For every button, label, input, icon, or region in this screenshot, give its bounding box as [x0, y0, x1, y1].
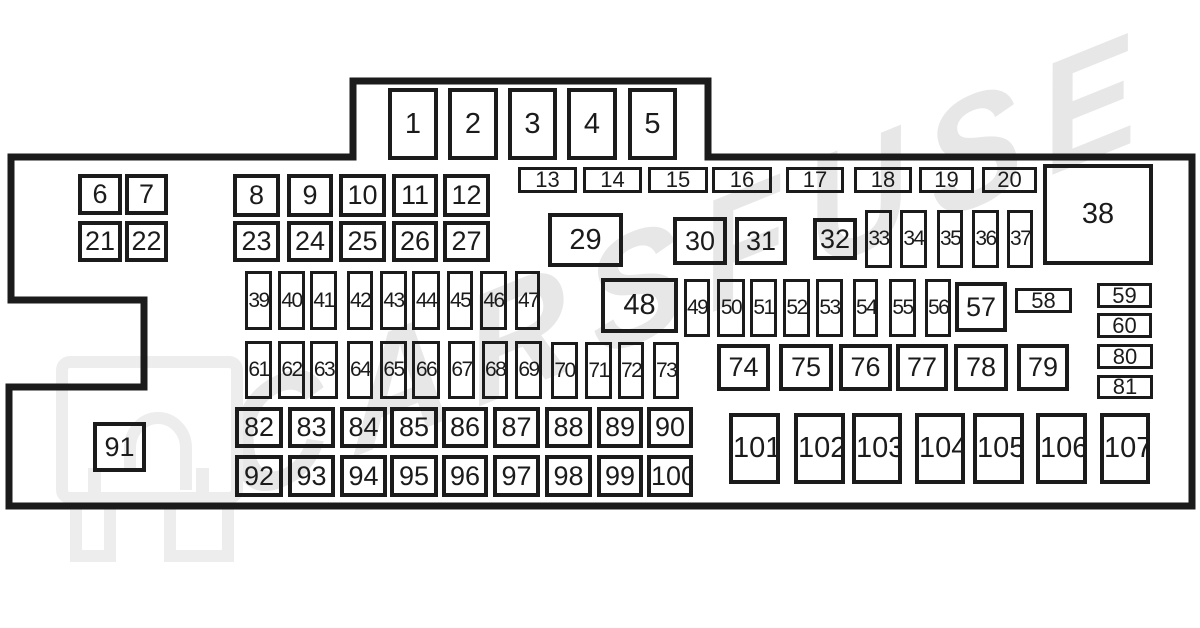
- fuse-cell-54: 54: [853, 279, 878, 337]
- fuse-cell-18: 18: [854, 167, 912, 193]
- fuse-cell-93: 93: [288, 455, 335, 497]
- fuse-cell-27: 27: [443, 221, 490, 262]
- fuse-cell-105: 105: [973, 413, 1024, 484]
- fuse-cell-70: 70: [551, 342, 578, 399]
- fuse-cell-4: 4: [567, 88, 617, 160]
- fuse-cell-55: 55: [889, 279, 916, 337]
- fuse-cell-67: 67: [448, 341, 475, 399]
- fuse-cell-65: 65: [380, 341, 407, 399]
- fuse-cell-49: 49: [684, 279, 710, 337]
- fuse-cell-26: 26: [392, 221, 438, 262]
- fuse-cell-16: 16: [712, 167, 772, 193]
- fuse-cell-2: 2: [448, 88, 498, 160]
- fuse-cell-89: 89: [597, 407, 643, 448]
- fuse-layer: 1234567891011121314151617181920212223242…: [0, 0, 1200, 628]
- fuse-cell-75: 75: [779, 344, 833, 391]
- fuse-cell-10: 10: [339, 174, 386, 217]
- fuse-cell-19: 19: [919, 167, 974, 193]
- fuse-cell-83: 83: [288, 407, 335, 448]
- fuse-cell-38: 38: [1043, 164, 1153, 265]
- fuse-cell-37: 37: [1007, 210, 1033, 268]
- fuse-cell-58: 58: [1015, 288, 1072, 313]
- fuse-cell-6: 6: [78, 174, 122, 215]
- fuse-cell-47: 47: [515, 271, 540, 330]
- fuse-cell-102: 102: [794, 413, 845, 484]
- fuse-cell-20: 20: [982, 167, 1037, 193]
- fuse-cell-66: 66: [412, 341, 440, 399]
- fuse-cell-8: 8: [233, 174, 280, 217]
- fuse-cell-57: 57: [955, 282, 1007, 332]
- fuse-cell-85: 85: [390, 407, 438, 448]
- fuse-cell-9: 9: [287, 174, 333, 217]
- fuse-cell-87: 87: [493, 407, 540, 448]
- fuse-cell-23: 23: [233, 221, 280, 262]
- fuse-cell-77: 77: [896, 344, 948, 391]
- fuse-cell-22: 22: [125, 221, 168, 262]
- fuse-cell-41: 41: [310, 271, 337, 330]
- fuse-cell-31: 31: [735, 217, 787, 265]
- fuse-cell-69: 69: [515, 341, 542, 399]
- fuse-cell-86: 86: [442, 407, 488, 448]
- fuse-cell-13: 13: [518, 167, 577, 193]
- fuse-cell-11: 11: [392, 174, 438, 217]
- fuse-cell-56: 56: [925, 279, 951, 337]
- fuse-cell-72: 72: [618, 342, 644, 399]
- fuse-cell-59: 59: [1097, 283, 1152, 308]
- fuse-cell-24: 24: [287, 221, 333, 262]
- fuse-cell-95: 95: [390, 455, 438, 497]
- fuse-cell-76: 76: [839, 344, 892, 391]
- fuse-cell-35: 35: [937, 210, 963, 268]
- fuse-cell-97: 97: [493, 455, 540, 497]
- fuse-cell-103: 103: [852, 413, 902, 484]
- fuse-cell-30: 30: [673, 217, 727, 265]
- fuse-cell-39: 39: [245, 271, 272, 330]
- fuse-cell-42: 42: [347, 271, 373, 330]
- fuse-cell-82: 82: [235, 407, 283, 448]
- fuse-cell-62: 62: [278, 341, 305, 399]
- fuse-cell-50: 50: [717, 279, 745, 337]
- fuse-cell-46: 46: [480, 271, 507, 330]
- fuse-cell-52: 52: [783, 279, 810, 337]
- fuse-cell-88: 88: [545, 407, 592, 448]
- fuse-cell-101: 101: [729, 413, 780, 484]
- fuse-cell-94: 94: [340, 455, 387, 497]
- fuse-cell-100: 100: [647, 455, 693, 497]
- fuse-cell-12: 12: [443, 174, 490, 217]
- fuse-cell-98: 98: [545, 455, 592, 497]
- fuse-cell-15: 15: [648, 167, 708, 193]
- fuse-cell-44: 44: [412, 271, 440, 330]
- fuse-cell-79: 79: [1017, 344, 1069, 391]
- fuse-cell-53: 53: [816, 279, 843, 337]
- fuse-cell-36: 36: [972, 210, 999, 268]
- fuse-cell-71: 71: [585, 342, 612, 399]
- fuse-cell-17: 17: [786, 167, 844, 193]
- fuse-cell-29: 29: [548, 213, 623, 267]
- fuse-cell-48: 48: [601, 278, 678, 333]
- fuse-cell-81: 81: [1097, 375, 1153, 399]
- fuse-cell-32: 32: [813, 218, 857, 260]
- fuse-cell-63: 63: [310, 341, 338, 399]
- fuse-cell-7: 7: [125, 174, 168, 215]
- fuse-cell-3: 3: [508, 88, 557, 160]
- fuse-cell-104: 104: [915, 413, 965, 484]
- fuse-cell-45: 45: [447, 271, 473, 330]
- fuse-cell-84: 84: [340, 407, 387, 448]
- fuse-cell-5: 5: [628, 88, 677, 160]
- fuse-cell-51: 51: [750, 279, 777, 337]
- fuse-cell-68: 68: [482, 341, 508, 399]
- fuse-cell-99: 99: [597, 455, 643, 497]
- fuse-cell-61: 61: [245, 341, 272, 399]
- fuse-cell-14: 14: [583, 167, 642, 193]
- fuse-cell-90: 90: [647, 407, 693, 448]
- fuse-cell-74: 74: [717, 344, 770, 391]
- fuse-cell-80: 80: [1097, 344, 1153, 369]
- fuse-cell-96: 96: [442, 455, 488, 497]
- fuse-cell-43: 43: [380, 271, 407, 330]
- fuse-cell-21: 21: [78, 221, 122, 262]
- fuse-cell-78: 78: [954, 344, 1008, 391]
- fuse-cell-1: 1: [388, 88, 438, 160]
- fuse-cell-92: 92: [235, 455, 283, 497]
- fuse-box-diagram: CARSFUSE 1234567891011121314151617181920…: [0, 0, 1200, 628]
- fuse-cell-60: 60: [1097, 313, 1152, 338]
- fuse-cell-34: 34: [900, 210, 927, 268]
- fuse-cell-33: 33: [865, 210, 892, 268]
- fuse-cell-106: 106: [1036, 413, 1087, 484]
- fuse-cell-73: 73: [653, 342, 679, 399]
- fuse-cell-40: 40: [278, 271, 305, 330]
- fuse-cell-91: 91: [93, 422, 146, 472]
- fuse-cell-64: 64: [347, 341, 373, 399]
- fuse-cell-25: 25: [339, 221, 386, 262]
- fuse-cell-107: 107: [1100, 413, 1150, 484]
